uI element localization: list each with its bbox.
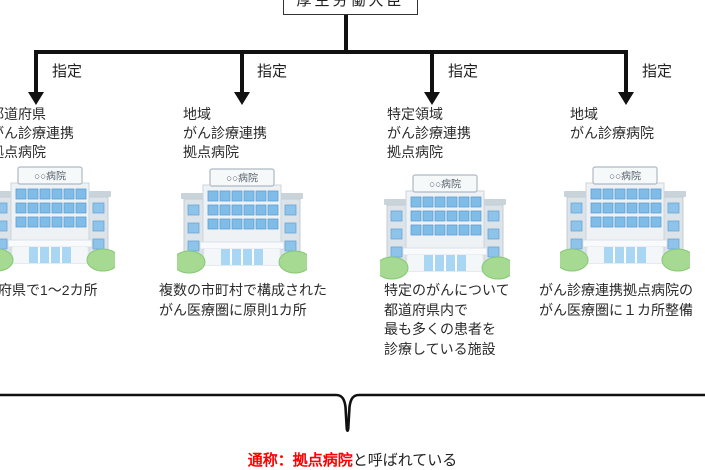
description-line: がん医療圏に原則1カ所 (159, 301, 327, 321)
brace-curve (0, 390, 705, 438)
description-line: 診療している施設 (384, 340, 510, 360)
footer-caption: 通称：拠点病院と呼ばれている (0, 449, 705, 470)
column-title-3: 特定領域 がん診療連携 拠点病院 (387, 105, 471, 162)
title-line: 都道府県 (0, 105, 74, 124)
title-line: がん診療連携 (183, 124, 267, 143)
designation-label-3: 指定 (448, 60, 478, 81)
arrow-head-icon (234, 92, 250, 105)
connector-horizontal-line (34, 50, 628, 54)
root-box: 厚生労働大臣 (283, 0, 418, 15)
designation-arrow-3 (430, 50, 434, 106)
designation-label-4: 指定 (642, 60, 672, 81)
arrow-head-icon (618, 92, 634, 105)
title-line: 地域 (570, 105, 654, 124)
description-line: がん医療圏に１カ所整備 (539, 301, 693, 321)
title-line: がん診療病院 (570, 124, 654, 143)
footer-highlight-text: 通称：拠点病院 (248, 452, 353, 469)
title-line: がん診療連携 (0, 124, 74, 143)
column-description-2: 複数の市町村で構成された がん医療圏に原則1カ所 (159, 281, 327, 320)
hospital-icon-4 (560, 166, 690, 272)
title-line: 拠点病院 (387, 143, 471, 162)
arrow-head-icon (28, 92, 44, 105)
designation-arrow-2 (240, 50, 244, 106)
column-description-3: 特定のがんについて 都道府県内で 最も多くの患者を 診療している施設 (384, 281, 510, 359)
column-title-2: 地域 がん診療連携 拠点病院 (183, 105, 267, 162)
title-line: 地域 (183, 105, 267, 124)
hospital-icon-1 (0, 166, 115, 272)
hospital-icon-3 (380, 174, 510, 280)
arrow-shaft (430, 50, 434, 93)
description-line: 都道府県で1～2カ所 (0, 281, 98, 301)
title-line: 拠点病院 (0, 143, 74, 162)
description-line: 特定のがんについて (384, 281, 510, 301)
description-line: 都道府県内で (384, 301, 510, 321)
connector-feed-line (344, 13, 348, 51)
designation-label-1: 指定 (52, 60, 82, 81)
column-title-4: 地域 がん診療病院 (570, 105, 654, 143)
column-description-4: がん診療連携拠点病院の がん医療圏に１カ所整備 (539, 281, 693, 320)
title-line: 拠点病院 (183, 143, 267, 162)
description-line: がん診療連携拠点病院の (539, 281, 693, 301)
description-line: 複数の市町村で構成された (159, 281, 327, 301)
arrow-shaft (240, 50, 244, 93)
column-description-1: 都道府県で1～2カ所 (0, 281, 98, 301)
designation-arrow-4 (624, 50, 628, 106)
hospital-icon-2 (177, 168, 307, 274)
title-line: がん診療連携 (387, 124, 471, 143)
description-line: 最も多くの患者を (384, 320, 510, 340)
designation-label-2: 指定 (257, 60, 287, 81)
arrow-shaft (624, 50, 628, 93)
footer-plain-text: と呼ばれている (353, 452, 458, 469)
arrow-shaft (34, 50, 38, 93)
column-title-1: 都道府県 がん診療連携 拠点病院 (0, 105, 74, 162)
arrow-head-icon (424, 92, 440, 105)
root-box-label: 厚生労働大臣 (296, 0, 404, 9)
title-line: 特定領域 (387, 105, 471, 124)
designation-arrow-1 (34, 50, 38, 106)
